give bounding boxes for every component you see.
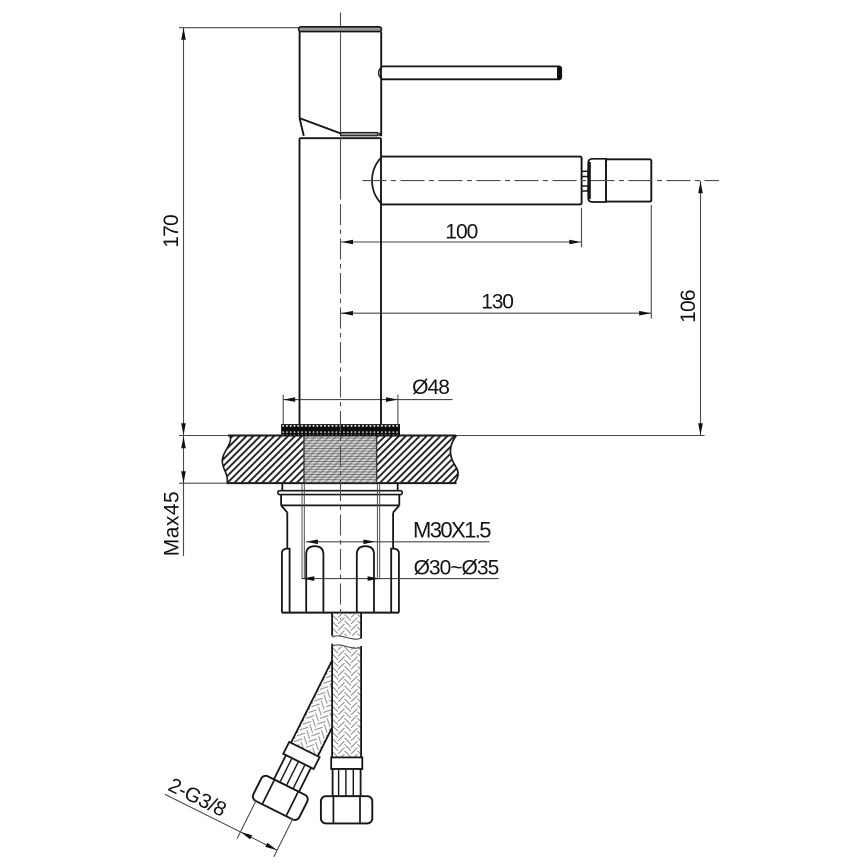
svg-text:M30X1.5: M30X1.5 (413, 518, 491, 543)
svg-text:Ø48: Ø48 (412, 376, 449, 399)
svg-text:170: 170 (160, 215, 183, 248)
svg-text:Max45: Max45 (160, 491, 183, 557)
svg-text:106: 106 (677, 290, 700, 323)
svg-text:130: 130 (481, 291, 513, 314)
svg-text:Ø30~Ø35: Ø30~Ø35 (414, 556, 499, 579)
svg-text:100: 100 (445, 220, 477, 243)
